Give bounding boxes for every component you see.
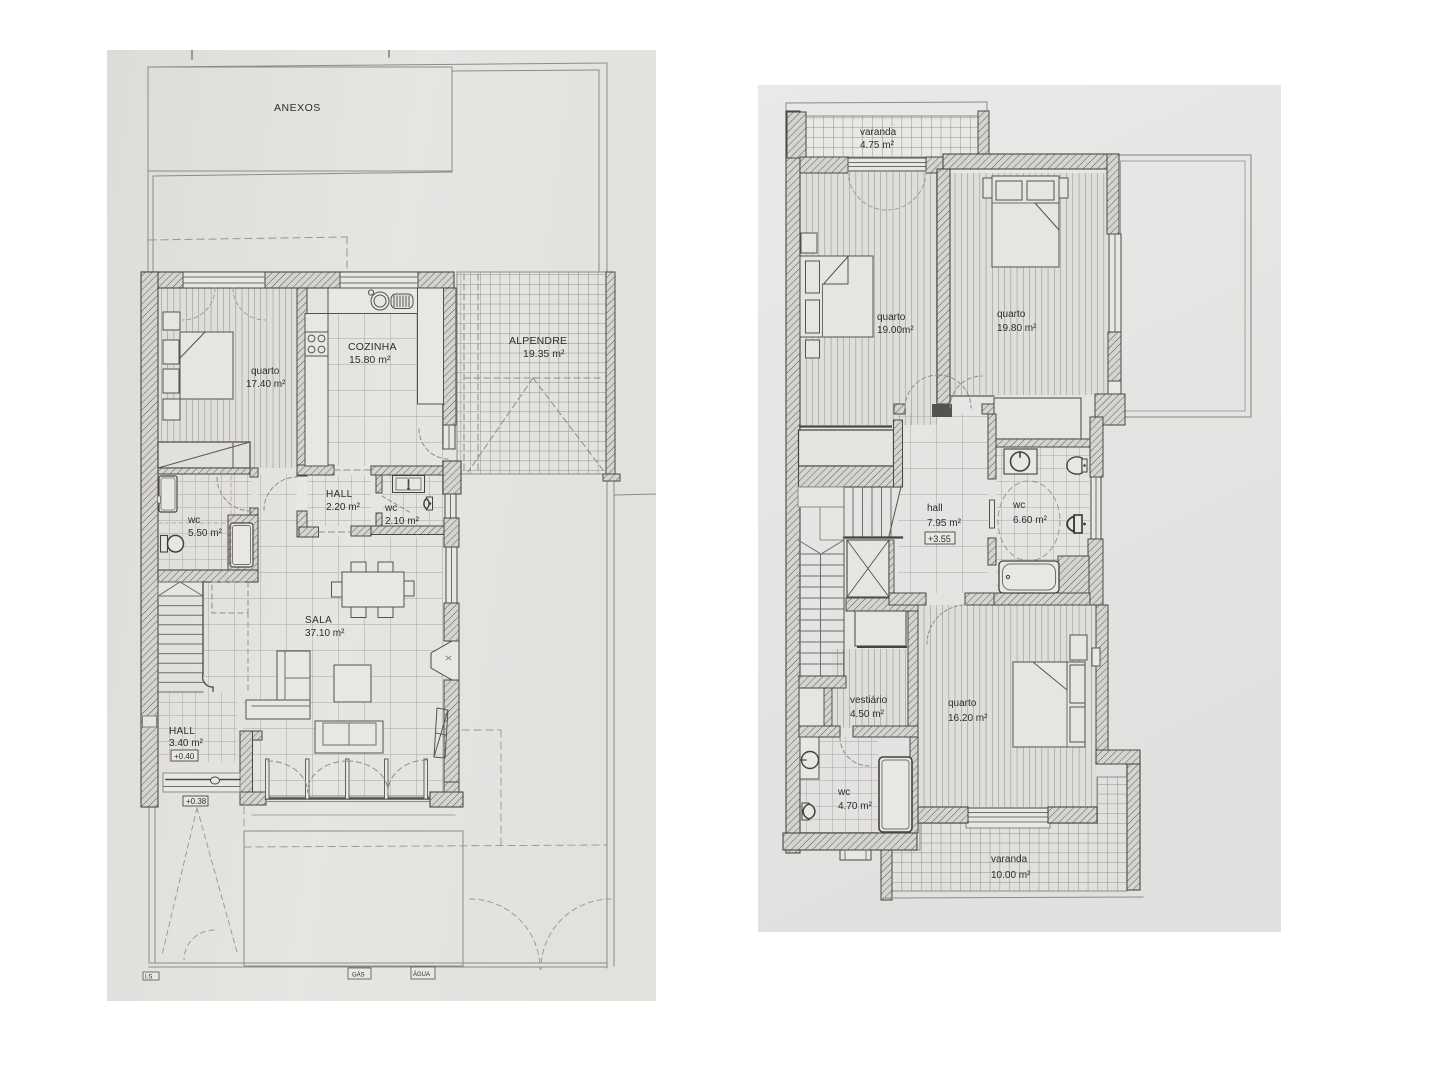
svg-text:19.35 m²: 19.35 m² — [523, 348, 565, 360]
svg-text:HALL: HALL — [169, 726, 195, 737]
svg-text:2.10 m²: 2.10 m² — [385, 516, 420, 527]
svg-text:varanda: varanda — [991, 854, 1028, 865]
svg-text:varanda: varanda — [860, 127, 897, 138]
svg-text:4.70 m²: 4.70 m² — [838, 801, 873, 812]
svg-text:vestiário: vestiário — [850, 695, 888, 706]
svg-text:19.00m²: 19.00m² — [877, 325, 914, 336]
svg-text:quarto: quarto — [877, 312, 906, 323]
svg-text:ÁGUA: ÁGUA — [413, 971, 430, 978]
svg-text:wc: wc — [1012, 500, 1025, 511]
svg-text:+3.55: +3.55 — [928, 534, 951, 544]
svg-text:hall: hall — [927, 503, 943, 514]
svg-text:+0.40: +0.40 — [174, 752, 195, 761]
svg-text:HALL: HALL — [326, 489, 353, 500]
svg-text:2.20 m²: 2.20 m² — [326, 502, 361, 513]
svg-text:5.50 m²: 5.50 m² — [188, 528, 223, 539]
svg-text:3.40 m²: 3.40 m² — [169, 738, 204, 749]
svg-text:wc: wc — [384, 503, 397, 514]
svg-text:10.00 m²: 10.00 m² — [991, 870, 1031, 881]
svg-text:quarto: quarto — [251, 366, 280, 377]
svg-text:15.80 m²: 15.80 m² — [349, 354, 391, 366]
svg-text:37.10 m²: 37.10 m² — [305, 628, 345, 639]
svg-text:7.95 m²: 7.95 m² — [927, 518, 962, 529]
svg-text:quarto: quarto — [948, 698, 977, 709]
svg-text:+0.38: +0.38 — [186, 797, 207, 806]
svg-text:19.80 m²: 19.80 m² — [997, 323, 1037, 334]
svg-text:COZINHA: COZINHA — [348, 341, 397, 353]
svg-text:17.40 m²: 17.40 m² — [246, 379, 286, 390]
svg-text:4.75 m²: 4.75 m² — [860, 140, 895, 151]
svg-text:GÁS: GÁS — [352, 972, 365, 979]
svg-text:wc: wc — [837, 787, 850, 798]
svg-text:I.S: I.S — [145, 975, 152, 981]
svg-text:4.50 m²: 4.50 m² — [850, 709, 885, 720]
svg-text:ANEXOS: ANEXOS — [274, 102, 321, 114]
svg-text:16.20 m²: 16.20 m² — [948, 713, 988, 724]
svg-text:quarto: quarto — [997, 309, 1026, 320]
svg-text:wc: wc — [187, 515, 200, 526]
svg-text:SALA: SALA — [305, 615, 332, 626]
svg-text:6.60 m²: 6.60 m² — [1013, 515, 1048, 526]
svg-text:ALPENDRE: ALPENDRE — [509, 335, 567, 347]
